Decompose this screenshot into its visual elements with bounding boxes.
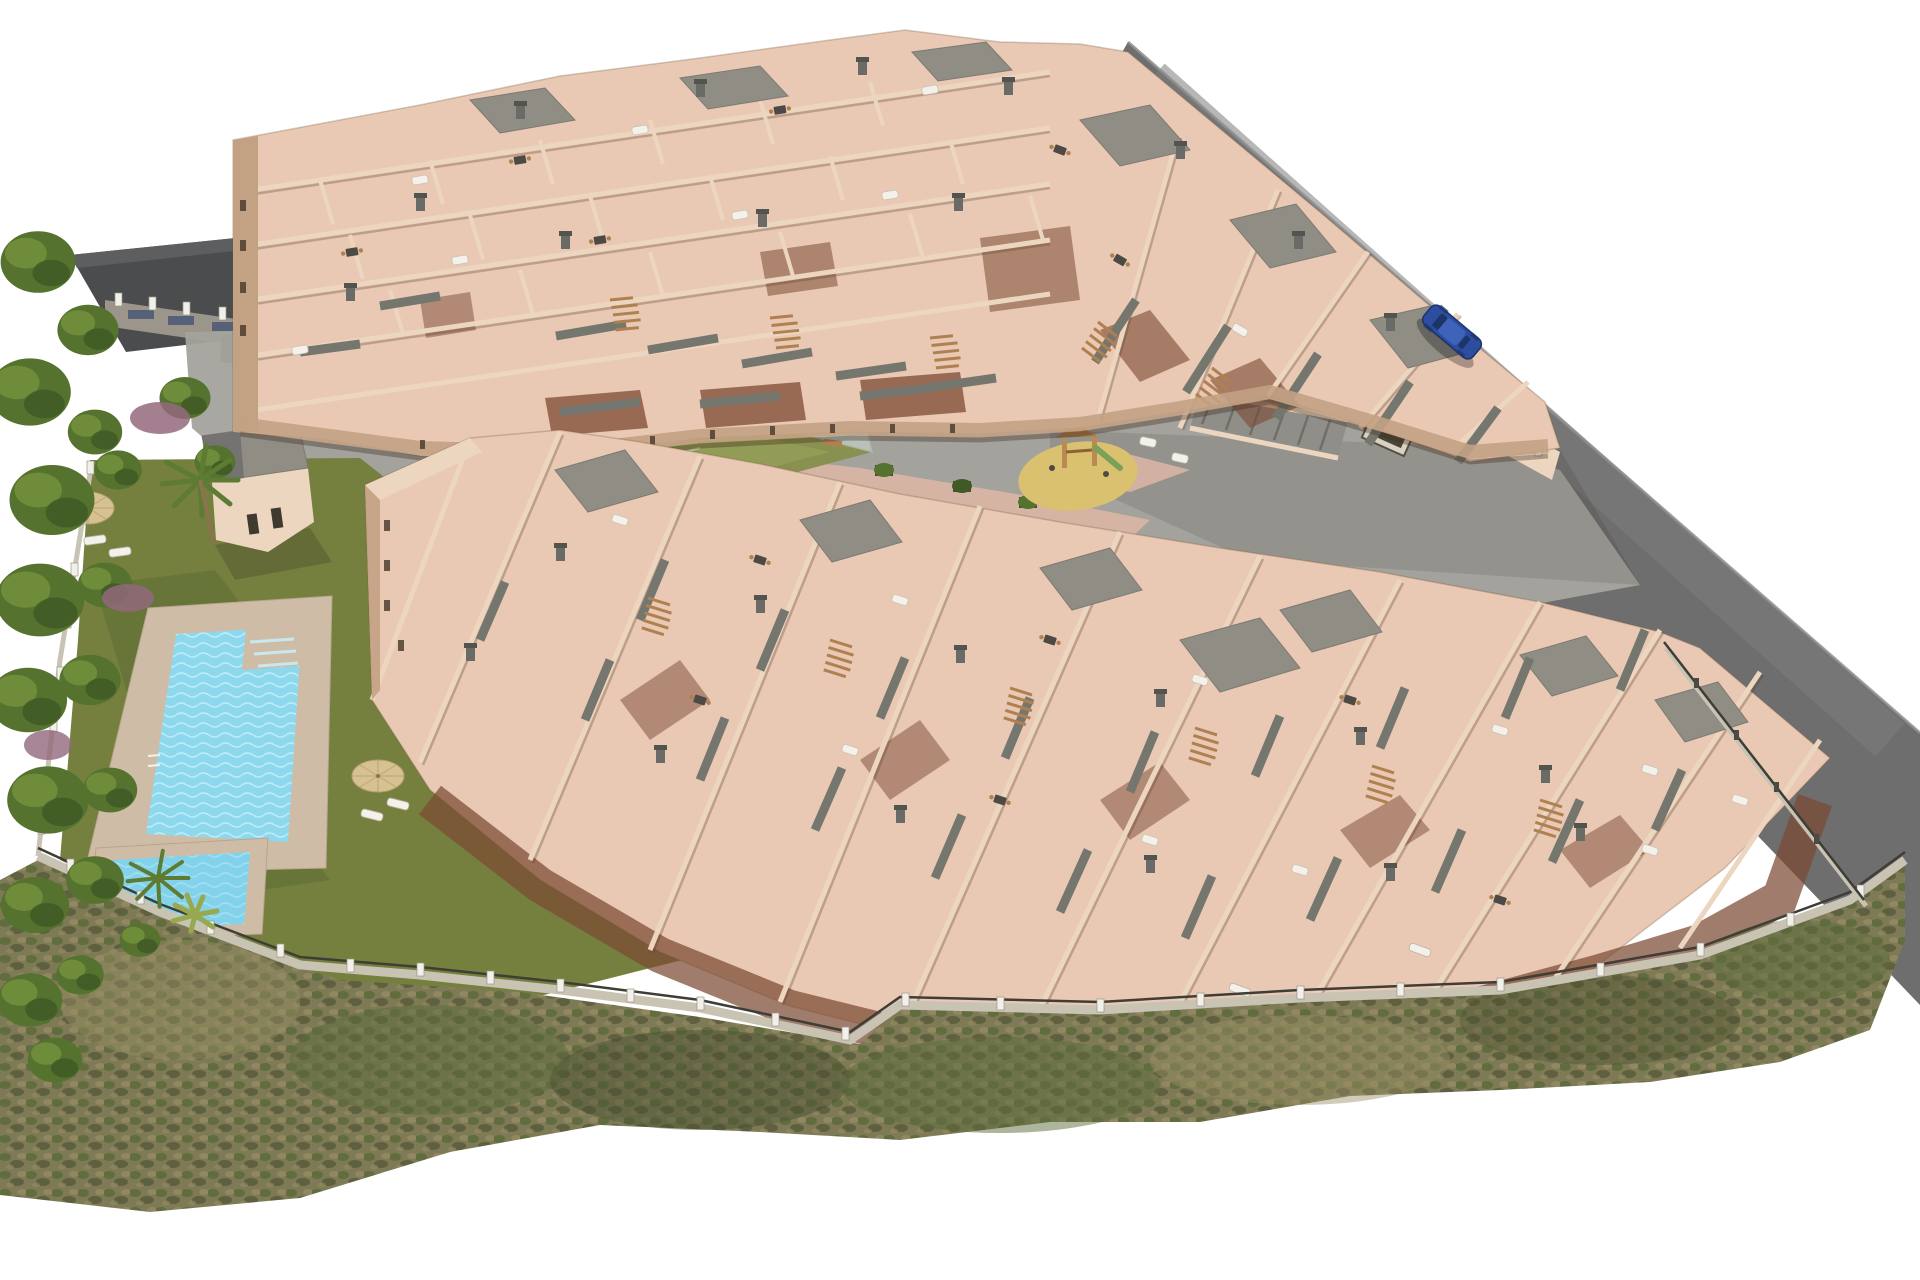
purple-shrub — [130, 402, 190, 434]
purple-shrub — [24, 730, 72, 760]
straw-umbrella — [352, 760, 404, 792]
purple-shrub — [102, 584, 154, 612]
aerial-render-canvas — [0, 0, 1920, 1280]
site-render — [0, 0, 1920, 1280]
